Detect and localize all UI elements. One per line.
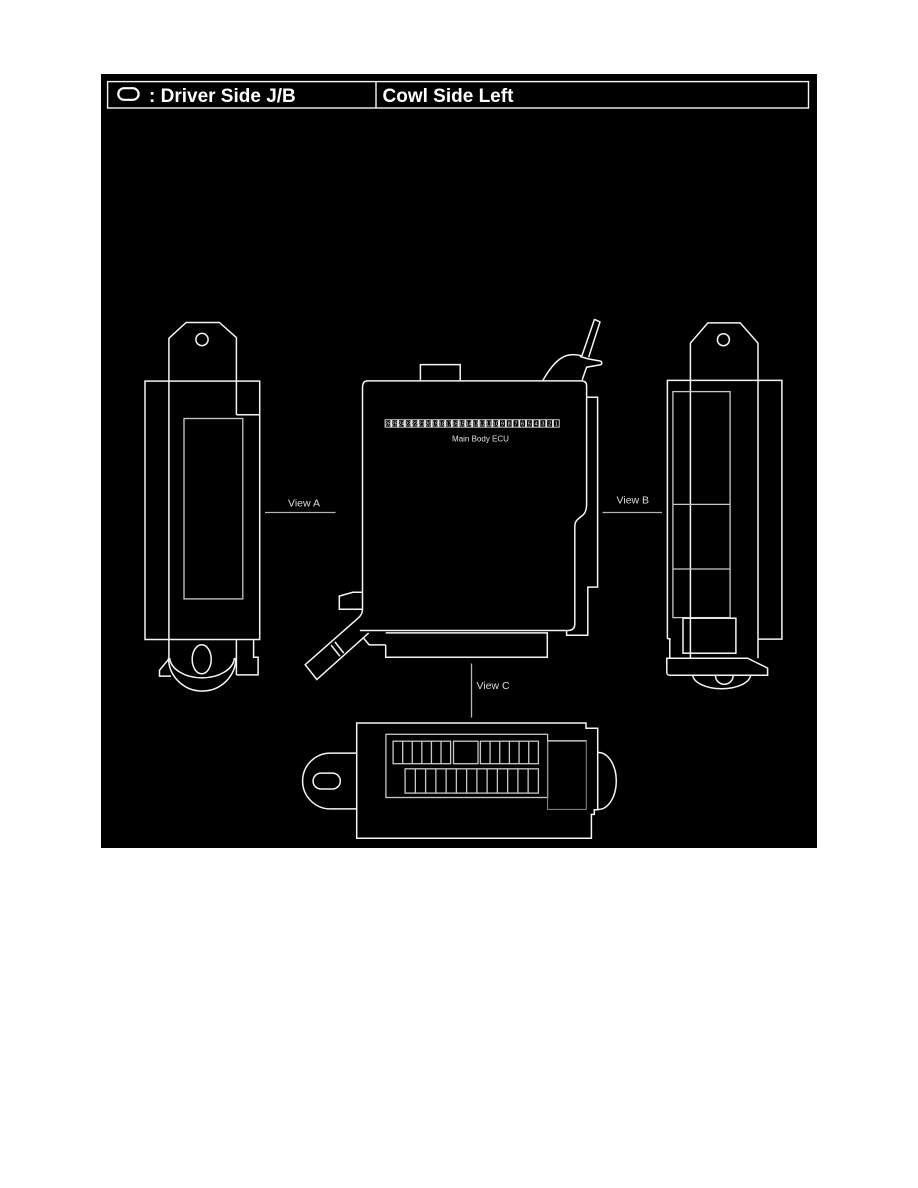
svg-text:15: 15 xyxy=(459,422,465,428)
svg-text:13: 13 xyxy=(472,422,478,428)
svg-text:11: 11 xyxy=(486,422,492,428)
svg-text:: Driver Side J/B: : Driver Side J/B xyxy=(149,86,296,107)
svg-text:24: 24 xyxy=(398,422,404,428)
svg-text:View C: View C xyxy=(477,680,510,692)
svg-text:View B: View B xyxy=(617,494,650,506)
svg-text:9: 9 xyxy=(501,422,504,428)
svg-text:10: 10 xyxy=(493,422,499,428)
svg-text:View A: View A xyxy=(288,497,320,509)
svg-text:1: 1 xyxy=(555,422,558,428)
svg-text:2: 2 xyxy=(548,422,551,428)
svg-text:19: 19 xyxy=(432,422,438,428)
svg-text:22: 22 xyxy=(412,422,418,428)
svg-text:6: 6 xyxy=(521,422,524,428)
svg-text:18: 18 xyxy=(439,422,445,428)
svg-text:17: 17 xyxy=(446,422,452,428)
svg-text:4: 4 xyxy=(535,422,538,428)
svg-text:3: 3 xyxy=(541,422,544,428)
svg-text:Main Body ECU: Main Body ECU xyxy=(452,434,509,443)
svg-text:8: 8 xyxy=(508,422,511,428)
svg-text:23: 23 xyxy=(405,422,411,428)
svg-text:16: 16 xyxy=(452,422,458,428)
svg-text:5: 5 xyxy=(528,422,531,428)
svg-text:12: 12 xyxy=(479,422,485,428)
svg-text:25: 25 xyxy=(392,422,398,428)
svg-text:26: 26 xyxy=(385,422,391,428)
svg-text:7: 7 xyxy=(514,422,517,428)
svg-text:14: 14 xyxy=(466,422,472,428)
svg-text:21: 21 xyxy=(419,422,425,428)
svg-text:20: 20 xyxy=(425,422,431,428)
svg-text:Cowl Side Left: Cowl Side Left xyxy=(383,86,515,107)
